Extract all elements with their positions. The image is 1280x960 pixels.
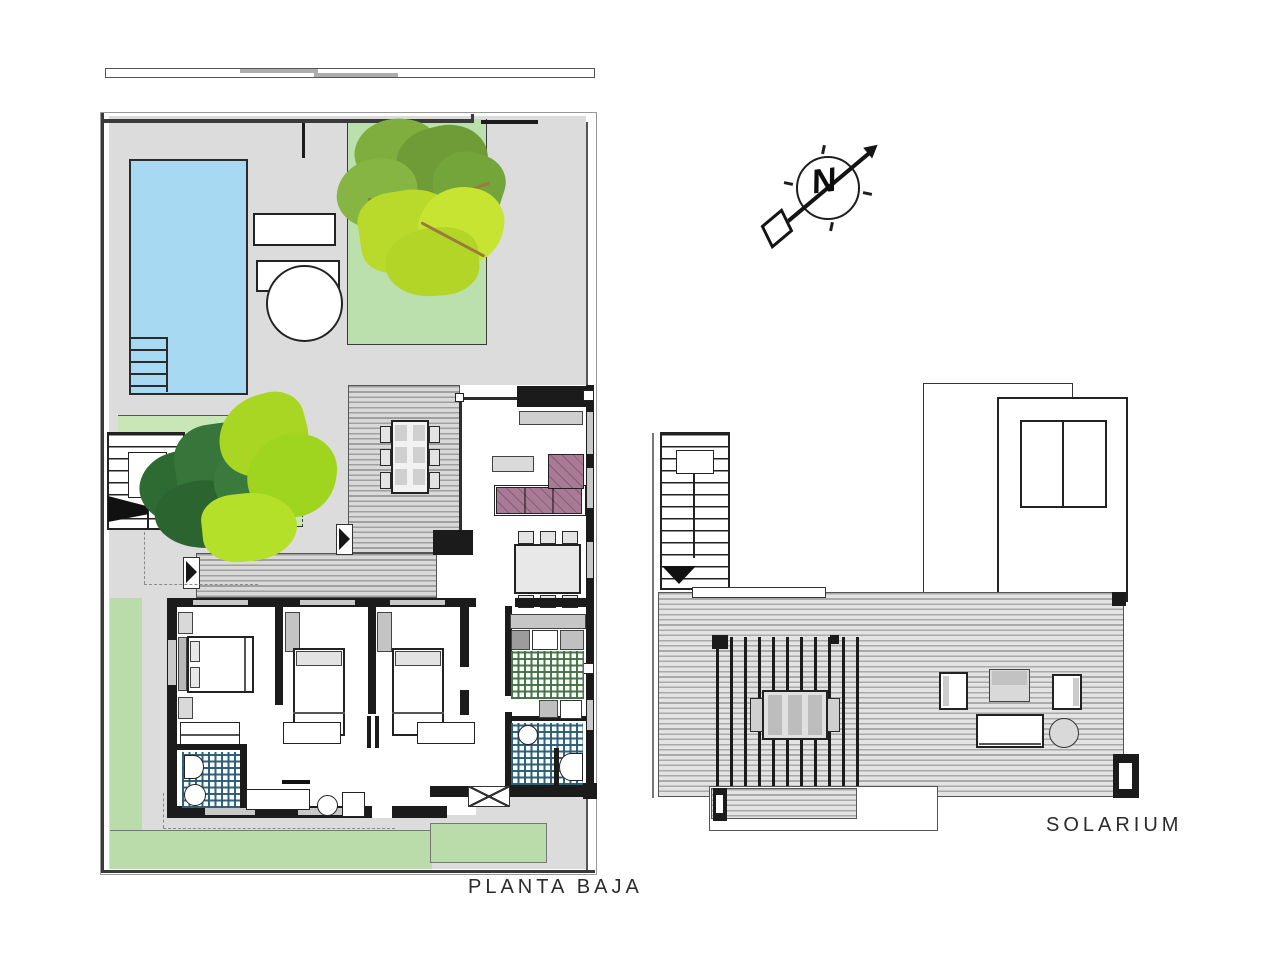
pillow xyxy=(395,651,441,666)
deck-post-core xyxy=(1119,763,1132,789)
bed-foot-line xyxy=(293,712,345,714)
deck-edge-strip xyxy=(692,587,826,598)
bed-foot-line xyxy=(392,712,444,714)
outdoor-chair xyxy=(429,472,440,489)
dining-chair xyxy=(540,531,556,544)
door-swing-x xyxy=(468,786,510,807)
pillow xyxy=(190,667,200,688)
skylight-divider xyxy=(1062,421,1064,507)
window-right xyxy=(587,542,593,578)
window-bedroom xyxy=(300,600,355,605)
compass-tick xyxy=(784,181,793,185)
glass-wall-vertical xyxy=(459,397,462,533)
sun-lounger xyxy=(253,213,336,246)
wall-hall-right xyxy=(460,607,469,667)
kitchen-island xyxy=(539,700,558,718)
dining-chair xyxy=(518,531,534,544)
armchair-cushion xyxy=(1073,678,1079,706)
pool-steps xyxy=(131,337,168,392)
stool xyxy=(317,795,338,816)
setback-dashed-line xyxy=(163,793,164,828)
window-bedroom xyxy=(390,600,445,605)
solarium-stair-landing xyxy=(676,450,714,474)
wall-corner-block xyxy=(583,783,597,799)
solarium-label: SOLARIUM xyxy=(1046,814,1182,837)
door-leaf xyxy=(367,716,371,748)
outdoor-table-setting xyxy=(413,425,425,489)
sofa-chaise xyxy=(548,454,584,489)
side-table xyxy=(342,792,365,817)
setback-dashed-line xyxy=(163,828,395,829)
window-right xyxy=(587,700,593,730)
wall-node xyxy=(583,663,594,674)
hall-mark xyxy=(282,780,310,784)
wall-bath1-top xyxy=(177,744,243,750)
outdoor-table-setting xyxy=(395,425,407,489)
bathroom-basin xyxy=(518,725,538,745)
window-right xyxy=(587,468,593,508)
wall-top-right xyxy=(517,386,587,407)
outdoor-chair xyxy=(429,426,440,443)
lawn-strip-left xyxy=(110,598,142,868)
dining-chair xyxy=(562,531,578,544)
site-wall-bar-shade xyxy=(240,69,318,73)
lawn-strip-bottom xyxy=(110,830,432,869)
wall-divider-2 xyxy=(368,607,376,714)
pergola-post xyxy=(830,635,839,644)
bed-foot-line xyxy=(244,638,246,691)
deck-arrow-icon xyxy=(339,528,350,550)
solarium-stair-arrow xyxy=(662,566,696,584)
nightstand xyxy=(178,612,193,634)
pillow xyxy=(296,651,342,666)
pergola-table-setting xyxy=(768,695,822,735)
nightstand xyxy=(178,697,193,719)
glass-corner-node xyxy=(455,393,464,402)
toilet xyxy=(184,755,204,779)
pool-round-table xyxy=(266,265,343,342)
coffee-table xyxy=(492,456,534,472)
sofa-seat xyxy=(496,487,582,514)
side-table-top xyxy=(992,671,1027,685)
wall-bottom-right xyxy=(505,785,587,797)
wardrobe-line xyxy=(181,734,239,736)
needle-tail xyxy=(761,208,794,249)
toilet xyxy=(559,753,583,781)
outdoor-chair xyxy=(380,449,391,466)
setback-dashed-line xyxy=(144,584,258,585)
solarium-stair-divider xyxy=(693,474,695,558)
console-table xyxy=(246,789,310,810)
compass-north-label: N xyxy=(812,160,837,202)
closet xyxy=(377,612,392,652)
kitchen-appliance xyxy=(560,630,584,650)
door-gap xyxy=(372,806,392,818)
wall-bottom-mid xyxy=(430,786,468,797)
compass-rose: N xyxy=(766,132,894,252)
kitchen-counter xyxy=(510,614,586,629)
kitchen-cabinet xyxy=(560,700,582,719)
kitchen-appliance xyxy=(511,630,530,650)
plot-wall-bottom xyxy=(101,870,595,873)
desk xyxy=(283,722,341,744)
garden-tree xyxy=(337,118,507,303)
pergola-post xyxy=(712,635,728,649)
sofa-seam xyxy=(524,488,526,513)
compass-tick xyxy=(821,145,825,154)
desk xyxy=(417,722,475,744)
kitchen-sink xyxy=(532,630,558,650)
lounge-table-line xyxy=(979,743,1041,745)
courtyard-tree xyxy=(140,395,335,570)
wall-chunk xyxy=(433,530,473,555)
window-right xyxy=(587,412,593,454)
plot-wall-left xyxy=(101,113,104,873)
compass-tick xyxy=(829,222,833,231)
door-leaf xyxy=(375,716,379,748)
pillow xyxy=(190,641,200,662)
pergola-chair xyxy=(827,698,840,732)
site-wall-bar-shade xyxy=(314,73,398,77)
wall-hall-right-lower xyxy=(460,690,469,715)
round-table xyxy=(1049,718,1079,748)
bathroom-basin xyxy=(184,784,206,806)
wall-kitchen-top xyxy=(515,598,586,607)
kitchen-tiled-floor xyxy=(511,651,584,699)
sideboard xyxy=(519,411,583,425)
wall-divider-1 xyxy=(275,607,283,705)
glass-wall-horizontal xyxy=(459,397,517,400)
armchair-cushion xyxy=(943,676,949,706)
outdoor-chair xyxy=(429,449,440,466)
wall-bedrooms-left xyxy=(167,598,177,816)
outdoor-chair xyxy=(380,426,391,443)
closet xyxy=(285,612,300,652)
ground-floor-label: PLANTA BAJA xyxy=(468,876,643,899)
bed-headboard xyxy=(178,637,187,691)
dining-table xyxy=(514,544,581,594)
landing-post-core xyxy=(716,795,723,813)
deck-post xyxy=(1112,592,1126,606)
wall-node xyxy=(583,390,594,401)
wall-stub xyxy=(554,748,559,785)
landing-deck xyxy=(711,788,857,819)
solarium-boundary-line xyxy=(652,433,654,798)
outdoor-chair xyxy=(380,472,391,489)
lawn-strip-bottom-right xyxy=(430,823,547,863)
window-bedroom xyxy=(193,600,248,605)
wall-stub xyxy=(302,119,305,158)
floor-plan-sheet: N PLANTA BAJA SOLARIUM xyxy=(0,0,1280,960)
sofa-seam xyxy=(552,488,554,513)
compass-tick xyxy=(863,191,872,195)
window-bedroom-left xyxy=(168,640,176,685)
